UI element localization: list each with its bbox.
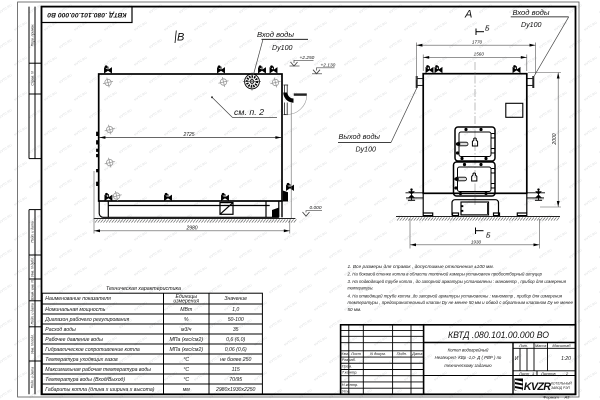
svg-text:Утв.: Утв.	[342, 388, 351, 393]
svg-text:Лист: Лист	[518, 371, 530, 376]
svg-text:KVTC.RU: KVTC.RU	[238, 283, 253, 295]
svg-text:KVTC.RU: KVTC.RU	[163, 265, 178, 277]
svg-text:KVTC.RU: KVTC.RU	[163, 125, 178, 137]
svg-text:KVTC.RU: KVTC.RU	[328, 108, 343, 120]
svg-text:KVTC.RU: KVTC.RU	[268, 318, 283, 330]
svg-text:KVTC.RU: KVTC.RU	[478, 108, 493, 120]
svg-text:KVTC.RU: KVTC.RU	[538, 318, 553, 330]
svg-text:KVTC.RU: KVTC.RU	[43, 265, 58, 277]
svg-text:KVTC.RU: KVTC.RU	[133, 230, 148, 242]
svg-text:KVTC.RU: KVTC.RU	[358, 38, 373, 50]
svg-text:Масса: Масса	[535, 343, 547, 348]
svg-text:KVTC.RU: KVTC.RU	[583, 300, 598, 312]
svg-text:KVTC.RU: KVTC.RU	[433, 55, 448, 67]
svg-text:Значение: Значение	[224, 296, 247, 302]
svg-text:МВт: МВт	[180, 307, 193, 313]
svg-text:KVTC.RU: KVTC.RU	[313, 125, 328, 137]
svg-text:KVTC.RU: KVTC.RU	[583, 90, 598, 102]
svg-text:KVTC.RU: KVTC.RU	[523, 125, 538, 137]
svg-text:КВТД .080.101.00.000 В0: КВТД .080.101.00.000 В0	[47, 11, 127, 18]
svg-text:В: В	[177, 32, 184, 44]
svg-text:KVTC.RU: KVTC.RU	[0, 108, 13, 120]
svg-text:KVTC.RU: KVTC.RU	[13, 335, 28, 347]
svg-text:KVTC.RU: KVTC.RU	[163, 230, 178, 242]
svg-text:KVTC.RU: KVTC.RU	[493, 230, 508, 242]
svg-text:KVTC.RU: KVTC.RU	[163, 20, 178, 32]
svg-text:KVTC.RU: KVTC.RU	[118, 143, 133, 155]
svg-text:KVTC.RU: KVTC.RU	[0, 248, 13, 260]
svg-text:KVTC.RU: KVTC.RU	[163, 160, 178, 172]
svg-text:KVTC.RU: KVTC.RU	[13, 90, 28, 102]
svg-text:KVTC.RU: KVTC.RU	[433, 90, 448, 102]
svg-text:KVTC.RU: KVTC.RU	[133, 335, 148, 347]
svg-text:2980х1930х2250: 2980х1930х2250	[215, 387, 256, 393]
svg-text:KVTC.RU: KVTC.RU	[118, 108, 133, 120]
svg-text:KVTC.RU: KVTC.RU	[553, 160, 568, 172]
svg-text:KVTC.RU: KVTC.RU	[388, 3, 403, 15]
svg-text:Температура уходящих газов: Температура уходящих газов	[45, 357, 118, 363]
svg-text:KVTC.RU: KVTC.RU	[268, 178, 283, 190]
svg-text:2. На боковой стенке котла в: 2. На боковой стенке котла в области топ…	[347, 271, 543, 278]
svg-text:KVTC.RU: KVTC.RU	[583, 160, 598, 172]
svg-text:KVTC.RU: KVTC.RU	[43, 160, 58, 172]
svg-text:KVTC.RU: KVTC.RU	[103, 55, 118, 67]
svg-text:KVTC.RU: KVTC.RU	[433, 160, 448, 172]
svg-text:KVTC.RU: KVTC.RU	[553, 90, 568, 102]
svg-text:KVTC.RU: KVTC.RU	[298, 213, 313, 225]
svg-text:KVTC.RU: KVTC.RU	[223, 125, 238, 137]
svg-text:KVTC.RU: KVTC.RU	[133, 125, 148, 137]
svg-text:KVTC.RU: KVTC.RU	[148, 248, 163, 260]
svg-text:KVTC.RU: KVTC.RU	[493, 195, 508, 207]
svg-text:35: 35	[233, 327, 239, 333]
svg-text:KVTC.RU: KVTC.RU	[0, 38, 13, 50]
svg-text:KVTC.RU: KVTC.RU	[328, 283, 343, 295]
svg-text:KVTC.RU: KVTC.RU	[373, 230, 388, 242]
svg-text:Дата: Дата	[411, 351, 423, 356]
svg-text:KVTC.RU: KVTC.RU	[388, 143, 403, 155]
svg-text:KVTC.RU: KVTC.RU	[313, 370, 328, 382]
svg-text:4. На отводящей трубе котла ,: 4. На отводящей трубе котла ,до запорной…	[348, 292, 563, 299]
svg-text:KVTC.RU: KVTC.RU	[358, 73, 373, 85]
svg-text:KVTC.RU: KVTC.RU	[553, 195, 568, 207]
svg-text:KVTC.RU: KVTC.RU	[343, 20, 358, 32]
svg-text:KVTC.RU: KVTC.RU	[583, 230, 598, 242]
svg-text:Номинальная мощность: Номинальная мощность	[45, 307, 105, 313]
svg-text:KVTC.RU: KVTC.RU	[268, 248, 283, 260]
svg-text:KVTC.RU: KVTC.RU	[118, 38, 133, 50]
svg-text:м3/ч: м3/ч	[181, 327, 192, 333]
svg-text:KVTC.RU: KVTC.RU	[523, 160, 538, 172]
svg-text:KVTC.RU: KVTC.RU	[178, 3, 193, 15]
svg-text:KVTC.RU: KVTC.RU	[88, 108, 103, 120]
svg-text:KVTC.RU: KVTC.RU	[433, 20, 448, 32]
svg-text:KVTC.RU: KVTC.RU	[0, 73, 13, 85]
svg-text:KVTC.RU: KVTC.RU	[433, 335, 448, 347]
svg-text:KVTC.RU: KVTC.RU	[328, 73, 343, 85]
svg-text:см. п. 2: см. п. 2	[234, 108, 265, 117]
svg-text:KVTC.RU: KVTC.RU	[538, 108, 553, 120]
svg-text:0,6 (6,0): 0,6 (6,0)	[226, 337, 245, 343]
svg-text:KVTC.RU: KVTC.RU	[13, 300, 28, 312]
svg-text:KVTC.RU: KVTC.RU	[0, 353, 13, 365]
svg-text:KVTC.RU: KVTC.RU	[388, 73, 403, 85]
svg-text:KVTC.RU: KVTC.RU	[403, 230, 418, 242]
svg-text:KVTC.RU: KVTC.RU	[283, 55, 298, 67]
svg-text:KVTC.RU: KVTC.RU	[148, 108, 163, 120]
svg-text:Б: Б	[486, 233, 491, 240]
svg-text:КВТД .080.101.00.000 ВО: КВТД .080.101.00.000 ВО	[448, 329, 550, 340]
svg-text:KVTC.RU: KVTC.RU	[583, 125, 598, 137]
svg-text:KVTC.RU: KVTC.RU	[163, 90, 178, 102]
svg-text:KVTC.RU: KVTC.RU	[118, 178, 133, 190]
svg-text:KVTC.RU: KVTC.RU	[418, 3, 433, 15]
svg-text:KVTC.RU: KVTC.RU	[283, 125, 298, 137]
svg-text:Вход воды: Вход воды	[257, 30, 294, 39]
svg-text:KVTC.RU: KVTC.RU	[178, 248, 193, 260]
svg-text:KVTC.RU: KVTC.RU	[388, 213, 403, 225]
svg-text:KVTC.RU: KVTC.RU	[373, 335, 388, 347]
svg-text:KVTC.RU: KVTC.RU	[538, 73, 553, 85]
svg-text:KVTC.RU: KVTC.RU	[463, 370, 478, 382]
svg-text:KVTC.RU: KVTC.RU	[148, 3, 163, 15]
svg-text:KVTC.RU: KVTC.RU	[88, 248, 103, 260]
svg-text:KVTC.RU: KVTC.RU	[58, 108, 73, 120]
svg-text:KVTC.RU: KVTC.RU	[358, 213, 373, 225]
svg-text:KVTC.RU: KVTC.RU	[358, 318, 373, 330]
svg-text:KVTC.RU: KVTC.RU	[493, 55, 508, 67]
svg-text:KVTC.RU: KVTC.RU	[58, 73, 73, 85]
svg-text:KVTC.RU: KVTC.RU	[73, 125, 88, 137]
svg-text:KVTC.RU: KVTC.RU	[583, 20, 598, 32]
svg-text:KVTC.RU: KVTC.RU	[508, 143, 523, 155]
svg-text:KVTC.RU: KVTC.RU	[313, 300, 328, 312]
svg-text:KVTC.RU: KVTC.RU	[283, 265, 298, 277]
svg-text:KVTC.RU: KVTC.RU	[208, 143, 223, 155]
svg-text:KVTC.RU: KVTC.RU	[583, 195, 598, 207]
svg-text:KVTC.RU: KVTC.RU	[13, 125, 28, 137]
svg-text:KVTC.RU: KVTC.RU	[133, 90, 148, 102]
svg-text:Подп. и дата: Подп. и дата	[30, 303, 34, 324]
svg-text:КОТЕЛЬНЫЙ: КОТЕЛЬНЫЙ	[551, 382, 572, 386]
svg-text:KVTC.RU: KVTC.RU	[358, 108, 373, 120]
svg-text:KVTC.RU: KVTC.RU	[223, 20, 238, 32]
svg-text:KVTC.RU: KVTC.RU	[208, 178, 223, 190]
svg-text:KVTC.RU: KVTC.RU	[373, 55, 388, 67]
svg-text:Dy100: Dy100	[521, 20, 542, 29]
svg-text:Heatexpert- КВр -1,0- Д ( РВР: Heatexpert- КВр -1,0- Д ( РВР ) по	[435, 355, 502, 360]
svg-text:Подп. и дата: Подп. и дата	[30, 221, 34, 242]
svg-text:KVTC.RU: KVTC.RU	[298, 248, 313, 260]
svg-text:KVTC.RU: KVTC.RU	[253, 160, 268, 172]
svg-text:KVTC.RU: KVTC.RU	[343, 195, 358, 207]
svg-text:KVTC.RU: KVTC.RU	[43, 55, 58, 67]
svg-text:KVTC.RU: KVTC.RU	[433, 230, 448, 242]
svg-text:И: И	[515, 356, 519, 362]
svg-text:KVTC.RU: KVTC.RU	[253, 370, 268, 382]
svg-text:KVTC.RU: KVTC.RU	[313, 20, 328, 32]
svg-text:KVTC.RU: KVTC.RU	[208, 38, 223, 50]
svg-text:Взам. инв. N: Взам. инв. N	[30, 280, 34, 300]
svg-text:KVTC.RU: KVTC.RU	[418, 318, 433, 330]
svg-text:KVTC.RU: KVTC.RU	[373, 90, 388, 102]
svg-text:KVTC.RU: KVTC.RU	[133, 160, 148, 172]
svg-text:Формат: Формат	[543, 394, 560, 399]
svg-text:KVTC.RU: KVTC.RU	[358, 248, 373, 260]
svg-text:KVTC.RU: KVTC.RU	[283, 335, 298, 347]
svg-text:МПа (кгс/см2): МПа (кгс/см2)	[169, 337, 203, 343]
svg-text:0.000: 0.000	[310, 205, 322, 211]
svg-text:KVTC.RU: KVTC.RU	[58, 143, 73, 155]
svg-text:°С: °С	[183, 377, 189, 383]
svg-text:KVTC.RU: KVTC.RU	[358, 3, 373, 15]
svg-text:N докум.: N докум.	[370, 351, 386, 356]
svg-text:KVTC.RU: KVTC.RU	[43, 230, 58, 242]
svg-text:KVTC.RU: KVTC.RU	[208, 3, 223, 15]
svg-text:KVTC.RU: KVTC.RU	[298, 353, 313, 365]
svg-text:KVTC.RU: KVTC.RU	[493, 90, 508, 102]
svg-text:Инв. N дубл.: Инв. N дубл.	[30, 257, 34, 277]
svg-text:KVTC.RU: KVTC.RU	[328, 38, 343, 50]
svg-text:KVTC.RU: KVTC.RU	[583, 335, 598, 347]
svg-text:1: 1	[532, 371, 534, 376]
svg-text:1,0: 1,0	[232, 307, 239, 313]
svg-text:KVTC.RU: KVTC.RU	[133, 20, 148, 32]
svg-text:KVTC.RU: KVTC.RU	[508, 318, 523, 330]
svg-text:ЗАВОД РЭП: ЗАВОД РЭП	[551, 386, 571, 390]
svg-text:KVTC.RU: KVTC.RU	[88, 143, 103, 155]
svg-text:KVTC.RU: KVTC.RU	[373, 195, 388, 207]
svg-text:KVTC.RU: KVTC.RU	[148, 143, 163, 155]
svg-text:KVTC.RU: KVTC.RU	[0, 213, 13, 225]
svg-text:KVTC.RU: KVTC.RU	[448, 108, 463, 120]
svg-text:KVTC.RU: KVTC.RU	[523, 90, 538, 102]
svg-text:KVTC.RU: KVTC.RU	[418, 178, 433, 190]
svg-text:Масштаб: Масштаб	[552, 343, 571, 348]
svg-text:KVTC.RU: KVTC.RU	[0, 143, 13, 155]
svg-text:Перв. примен.: Перв. примен.	[30, 24, 34, 47]
svg-text:мм: мм	[183, 387, 191, 393]
svg-text:KVTC.RU: KVTC.RU	[463, 90, 478, 102]
svg-text:KVTC.RU: KVTC.RU	[328, 248, 343, 260]
svg-text:KVTC.RU: KVTC.RU	[58, 213, 73, 225]
svg-text:KVTC.RU: KVTC.RU	[463, 55, 478, 67]
svg-text:не более 250: не более 250	[220, 357, 252, 363]
svg-text:KVTC.RU: KVTC.RU	[403, 20, 418, 32]
svg-text:Изм.: Изм.	[341, 351, 349, 356]
svg-text:KVTC.RU: KVTC.RU	[193, 370, 208, 382]
svg-text:KVTC.RU: KVTC.RU	[388, 38, 403, 50]
svg-text:KVTC.RU: KVTC.RU	[253, 230, 268, 242]
svg-text:KVTC.RU: KVTC.RU	[553, 55, 568, 67]
svg-text:Листов: Листов	[540, 371, 556, 376]
svg-text:техническому заданию: техническому заданию	[444, 363, 492, 368]
svg-text:KVTC.RU: KVTC.RU	[328, 178, 343, 190]
svg-text:KVTC.RU: KVTC.RU	[373, 20, 388, 32]
svg-text:KVTC.RU: KVTC.RU	[283, 300, 298, 312]
svg-text:KVTC.RU: KVTC.RU	[43, 125, 58, 137]
svg-text:KVTC.RU: KVTC.RU	[538, 353, 553, 365]
svg-text:Пров.: Пров.	[342, 363, 352, 368]
svg-text:KVTC.RU: KVTC.RU	[148, 178, 163, 190]
svg-text:KVTC.RU: KVTC.RU	[13, 55, 28, 67]
svg-text:KVTC.RU: KVTC.RU	[163, 55, 178, 67]
svg-text:KVTC.RU: KVTC.RU	[163, 370, 178, 382]
svg-text:KVTC.RU: KVTC.RU	[388, 318, 403, 330]
svg-text:KVTC.RU: KVTC.RU	[268, 283, 283, 295]
svg-text:KVTC.RU: KVTC.RU	[298, 3, 313, 15]
svg-text:Температура воды (Вход/Выход): Температура воды (Вход/Выход)	[45, 377, 125, 383]
svg-text:KVTC.RU: KVTC.RU	[388, 248, 403, 260]
svg-text:KVTC.RU: KVTC.RU	[523, 55, 538, 67]
svg-text:МПа (кгс/см2): МПа (кгс/см2)	[169, 347, 203, 353]
svg-text:KVTC.RU: KVTC.RU	[313, 90, 328, 102]
svg-text:KVTC.RU: KVTC.RU	[583, 55, 598, 67]
svg-text:1:20: 1:20	[561, 356, 571, 362]
svg-text:KVTC.RU: KVTC.RU	[133, 300, 148, 312]
svg-text:KVTC.RU: KVTC.RU	[193, 125, 208, 137]
svg-text:1930: 1930	[471, 239, 482, 244]
svg-text:KVTC.RU: KVTC.RU	[433, 125, 448, 137]
svg-text:2000: 2000	[552, 133, 558, 145]
svg-text:KVTC.RU: KVTC.RU	[418, 143, 433, 155]
svg-text:KVTC.RU: KVTC.RU	[358, 178, 373, 190]
svg-text:KVTC.RU: KVTC.RU	[313, 265, 328, 277]
svg-text:KVTC.RU: KVTC.RU	[253, 55, 268, 67]
svg-text:3. На подводящей трубе котла: 3. На подводящей трубе котла , до запорн…	[348, 278, 567, 285]
svg-text:KVTC.RU: KVTC.RU	[523, 230, 538, 242]
svg-text:KVTC.RU: KVTC.RU	[223, 55, 238, 67]
svg-text:KVTC.RU: KVTC.RU	[238, 248, 253, 260]
svg-text:%: %	[184, 317, 189, 323]
svg-text:измерения: измерения	[173, 299, 199, 305]
svg-text:KVTC.RU: KVTC.RU	[88, 38, 103, 50]
svg-text:температуры.: температуры.	[348, 287, 374, 292]
svg-text:Рабочее давление воды: Рабочее давление воды	[45, 337, 103, 343]
svg-text:KVTC.RU: KVTC.RU	[103, 230, 118, 242]
svg-text:KVTC.RU: KVTC.RU	[103, 90, 118, 102]
svg-text:KVTC.RU: KVTC.RU	[538, 178, 553, 190]
svg-text:Лит.: Лит.	[518, 343, 528, 348]
svg-text:KVTC.RU: KVTC.RU	[88, 283, 103, 295]
svg-text:Подп. и дата: Подп. и дата	[30, 367, 34, 388]
svg-text:2725: 2725	[182, 132, 194, 138]
svg-text:Максимальная рабочая температу: Максимальная рабочая температура воды	[45, 367, 151, 373]
svg-text:KVTC.RU: KVTC.RU	[13, 20, 28, 32]
svg-text:KVTC.RU: KVTC.RU	[298, 178, 313, 190]
svg-text:2980: 2980	[185, 225, 197, 231]
svg-text:KVTC.RU: KVTC.RU	[73, 55, 88, 67]
svg-text:KVTC.RU: KVTC.RU	[418, 248, 433, 260]
svg-text:KVTC.RU: KVTC.RU	[58, 38, 73, 50]
svg-text:KVTC.RU: KVTC.RU	[418, 108, 433, 120]
svg-text:KVTC.RU: KVTC.RU	[13, 370, 28, 382]
svg-text:Габариты котла (длина х ширина: Габариты котла (длина х ширина х высота)	[45, 387, 154, 393]
svg-text:KVTC.RU: KVTC.RU	[478, 3, 493, 15]
svg-text:KVTC.RU: KVTC.RU	[283, 160, 298, 172]
svg-text:KVTC.RU: KVTC.RU	[508, 248, 523, 260]
svg-text:KVTC.RU: KVTC.RU	[508, 38, 523, 50]
svg-text:KVTC.RU: KVTC.RU	[43, 90, 58, 102]
svg-text:Dy100: Dy100	[272, 43, 293, 52]
svg-text:KVTC.RU: KVTC.RU	[268, 3, 283, 15]
svg-text:KVTC.RU: KVTC.RU	[508, 178, 523, 190]
svg-text:KVTC.RU: KVTC.RU	[448, 248, 463, 260]
svg-text:KVTC.RU: KVTC.RU	[193, 160, 208, 172]
svg-text:KVZR: KVZR	[524, 381, 551, 393]
svg-text:Н.контр.: Н.контр.	[342, 382, 358, 387]
svg-text:KVTC.RU: KVTC.RU	[193, 230, 208, 242]
svg-text:1. Все размеры для справок ,: 1. Все размеры для справок , допустимые …	[348, 264, 495, 270]
svg-text:KVTC.RU: KVTC.RU	[73, 160, 88, 172]
svg-text:А: А	[464, 9, 472, 21]
svg-text:KVTC.RU: KVTC.RU	[208, 283, 223, 295]
svg-text:KVTC.RU: KVTC.RU	[13, 265, 28, 277]
svg-text:°С: °С	[183, 357, 189, 363]
svg-text:Выход воды: Выход воды	[339, 132, 381, 141]
svg-text:KVTC.RU: KVTC.RU	[0, 388, 13, 400]
svg-text:KVTC.RU: KVTC.RU	[343, 90, 358, 102]
svg-text:50 мм.: 50 мм.	[348, 307, 362, 313]
svg-text:KVTC.RU: KVTC.RU	[553, 265, 568, 277]
svg-text:70/95: 70/95	[229, 377, 242, 383]
svg-text:KVTC.RU: KVTC.RU	[298, 143, 313, 155]
svg-text:KVTC.RU: KVTC.RU	[343, 335, 358, 347]
svg-text:KVTC.RU: KVTC.RU	[538, 213, 553, 225]
svg-text:KVTC.RU: KVTC.RU	[253, 125, 268, 137]
svg-text:KVTC.RU: KVTC.RU	[103, 265, 118, 277]
svg-text:KVTC.RU: KVTC.RU	[253, 335, 268, 347]
svg-text:KVTC.RU: KVTC.RU	[388, 108, 403, 120]
svg-text:KVTC.RU: KVTC.RU	[193, 265, 208, 277]
svg-text:температуры , предохранительны: температуры , предохранительный клапан D…	[348, 299, 574, 306]
svg-text:KVTC.RU: KVTC.RU	[448, 3, 463, 15]
svg-text:KVTC.RU: KVTC.RU	[148, 38, 163, 50]
svg-text:KVTC.RU: KVTC.RU	[178, 178, 193, 190]
svg-text:KVTC.RU: KVTC.RU	[448, 38, 463, 50]
svg-text:Лист: Лист	[350, 351, 362, 356]
svg-text:Справ. N: Справ. N	[30, 71, 34, 86]
svg-text:KVTC.RU: KVTC.RU	[583, 370, 598, 382]
svg-text:Наименование показателя: Наименование показателя	[45, 296, 111, 302]
svg-text:KVTC.RU: KVTC.RU	[223, 230, 238, 242]
svg-text:KVTC.RU: KVTC.RU	[343, 160, 358, 172]
svg-text:1560: 1560	[474, 52, 485, 57]
svg-text:KVTC.RU: KVTC.RU	[223, 90, 238, 102]
svg-text:KVTC.RU: KVTC.RU	[253, 90, 268, 102]
svg-text:KVTC.RU: KVTC.RU	[538, 248, 553, 260]
svg-text:Диапазон рабочего регулировани: Диапазон рабочего регулирования	[44, 317, 129, 323]
svg-text:1770: 1770	[472, 40, 483, 45]
svg-text:KVTC.RU: KVTC.RU	[373, 160, 388, 172]
svg-text:KVTC.RU: KVTC.RU	[43, 195, 58, 207]
svg-text:KVTC.RU: KVTC.RU	[88, 178, 103, 190]
svg-text:KVTC.RU: KVTC.RU	[553, 230, 568, 242]
svg-text:KVTC.RU: KVTC.RU	[328, 3, 343, 15]
svg-text:KVTC.RU: KVTC.RU	[478, 248, 493, 260]
svg-text:KVTC.RU: KVTC.RU	[238, 3, 253, 15]
svg-text:KVTC.RU: KVTC.RU	[268, 143, 283, 155]
svg-text:Dy100: Dy100	[356, 145, 377, 154]
svg-text:KVTC.RU: KVTC.RU	[13, 230, 28, 242]
svg-text:KVTC.RU: KVTC.RU	[178, 108, 193, 120]
svg-text:KVTC.RU: KVTC.RU	[538, 143, 553, 155]
svg-text:KVTC.RU: KVTC.RU	[493, 370, 508, 382]
svg-text:KVTC.RU: KVTC.RU	[268, 353, 283, 365]
svg-text:KVTC.RU: KVTC.RU	[403, 125, 418, 137]
svg-text:KVTC.RU: KVTC.RU	[0, 318, 13, 330]
svg-text:KVTC.RU: KVTC.RU	[73, 195, 88, 207]
